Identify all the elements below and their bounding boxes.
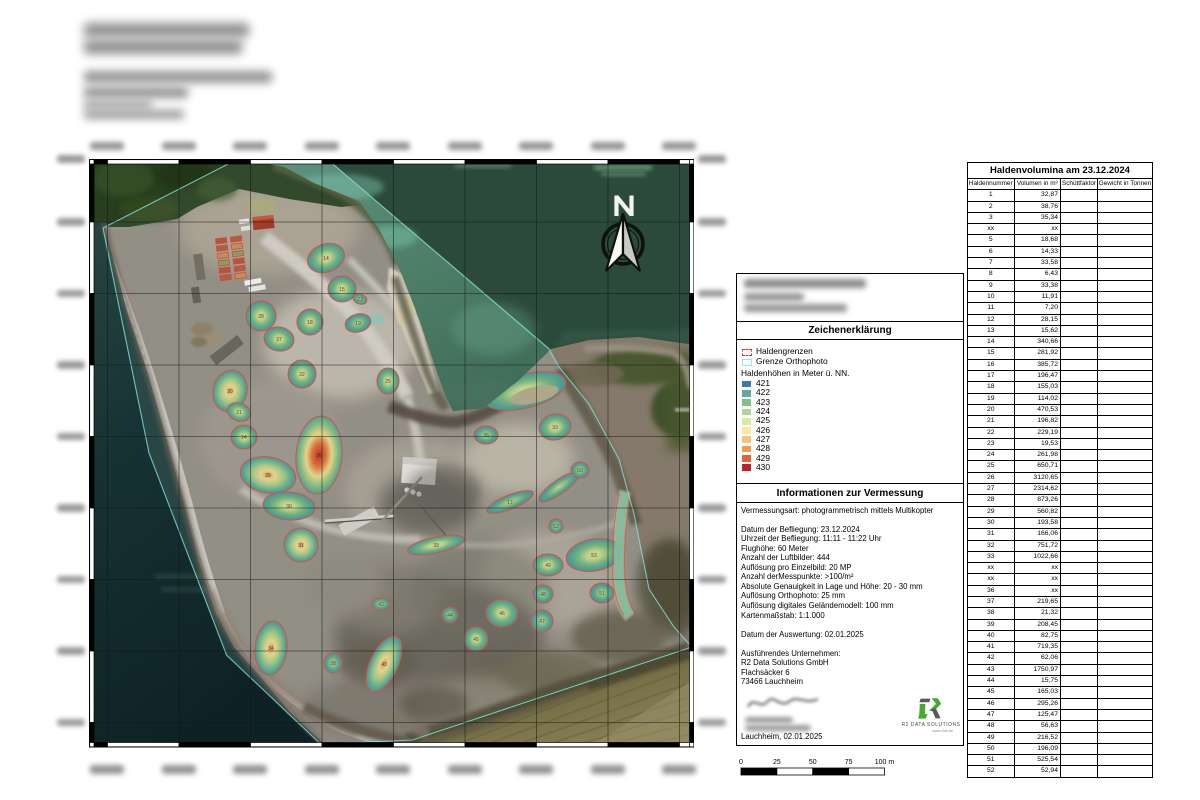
svg-text:75: 75: [845, 759, 853, 766]
svg-text:R2 DATA SOLUTIONS: R2 DATA SOLUTIONS: [902, 722, 961, 728]
svg-text:0: 0: [739, 759, 743, 766]
svg-text:25: 25: [773, 759, 781, 766]
svg-text:www.r2ds.de: www.r2ds.de: [932, 729, 953, 733]
svg-text:100 m: 100 m: [875, 759, 895, 766]
svg-text:50: 50: [809, 759, 817, 766]
